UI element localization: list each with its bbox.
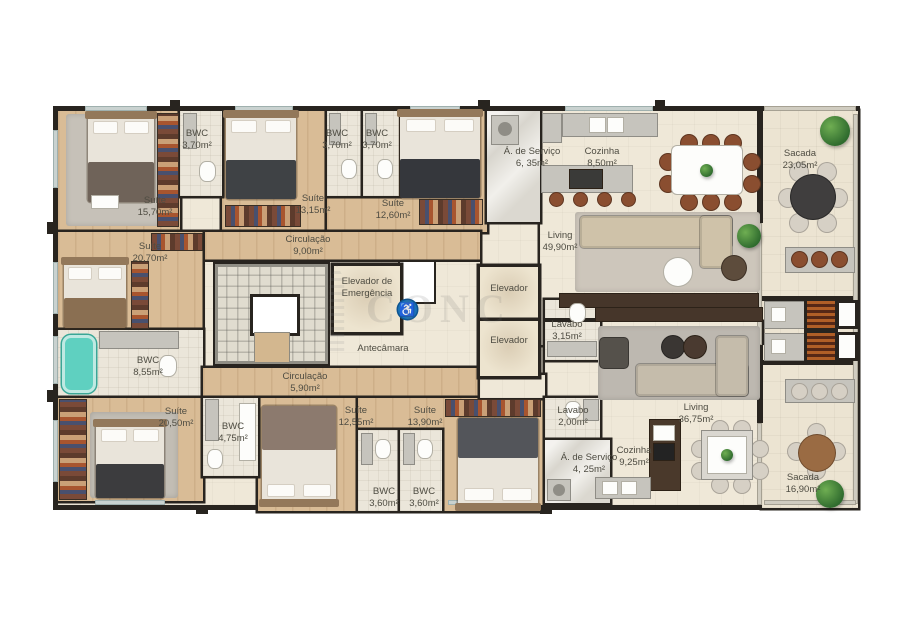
stool-icon (550, 193, 563, 206)
pillar (47, 390, 56, 402)
coffee-table-icon (664, 258, 692, 286)
chair-icon (681, 194, 697, 210)
pillar (196, 505, 208, 514)
sink-icon (622, 482, 636, 494)
room-label-bwc-3-70-c: BWC3,70m² (357, 128, 397, 151)
room-label-suite-12-60: Suíte12,60m² (358, 198, 428, 221)
bed-icon (226, 115, 296, 199)
washer-door (553, 484, 565, 496)
floor-plan: ♿ (0, 0, 900, 636)
room-label-lavabo-2-00: Lavabo2,00m² (543, 405, 603, 428)
vanity-icon (362, 434, 372, 464)
room-label-sacada-16-90: Sacada16,90m² (768, 472, 838, 495)
room-label-suite-13-15: Suíte13,15m² (278, 193, 348, 216)
fridge-icon (543, 114, 561, 142)
centerpiece-plant-icon (700, 164, 713, 177)
sink-icon (772, 340, 785, 353)
pillar (478, 100, 490, 109)
bbq-counter-icon (765, 334, 805, 360)
window (53, 262, 58, 314)
plant-icon (737, 224, 761, 248)
stair-void (250, 294, 300, 336)
window (53, 336, 58, 384)
window (53, 130, 58, 188)
plant-icon (820, 116, 850, 146)
cushion-icon (792, 252, 807, 267)
window (565, 106, 653, 111)
room-hall-patch (480, 375, 545, 398)
bbq-counter-icon (765, 302, 805, 328)
balcony-table-icon (799, 435, 835, 471)
room-label-circulacao-5-90: Circulação5,90m² (265, 371, 345, 394)
bed-icon (96, 424, 164, 498)
tv-console-icon (560, 294, 758, 307)
room-label-living-36-75: Living36,75m² (661, 402, 731, 425)
bed-icon (88, 116, 154, 202)
room-label-lavabo-3-15: Lavabo3,15m² (537, 319, 597, 342)
room-label-bwc-3-70-b: BWC3,70m² (317, 128, 357, 151)
toilet-icon (418, 440, 432, 458)
toilet-icon (342, 160, 356, 178)
toilet-icon (208, 450, 222, 468)
vanity-icon (404, 434, 414, 464)
room-label-suite-15-70: Suíte15,70m² (115, 195, 195, 218)
pillar (655, 100, 665, 109)
sofa-icon (716, 336, 748, 396)
chair-icon (725, 194, 741, 210)
room-label-bwc-3-60-a: BWC3,60m² (362, 486, 406, 509)
wardrobe-icon (420, 200, 482, 224)
sink-icon (603, 482, 617, 494)
room-label-suite-20-70: Suíte20,70m² (115, 241, 185, 264)
chair-icon (744, 154, 760, 170)
room-label-bwc-8-55: BWC8,55m² (118, 355, 178, 378)
cushion-icon (812, 252, 827, 267)
chair-icon (744, 176, 760, 192)
stair-run (255, 333, 289, 362)
chair-icon (752, 441, 768, 457)
cushion-icon (792, 384, 807, 399)
coffee-table-icon (662, 336, 684, 358)
chair-icon (703, 194, 719, 210)
pillar (170, 100, 180, 109)
window (53, 420, 58, 482)
bed-icon (458, 418, 538, 506)
room-label-living-49-90: Living49,90m² (525, 230, 595, 253)
toilet-icon (378, 160, 392, 178)
room-label-bwc-3-60-b: BWC3,60m² (402, 486, 446, 509)
room-label-suite-13-90: Suíte13,90m² (390, 405, 460, 428)
wardrobe-icon (446, 400, 540, 416)
grill-icon (807, 301, 835, 328)
balcony-railing-top (764, 106, 856, 111)
cooktop-icon (570, 170, 602, 188)
bed-icon (64, 262, 126, 328)
room-label-suite-12-55: Suíte12,55m² (321, 405, 391, 428)
tv-console-icon (596, 308, 762, 321)
sink-icon (590, 118, 605, 132)
chair-icon (734, 477, 750, 493)
sink-icon (608, 118, 623, 132)
wardrobe-icon (132, 262, 148, 328)
bbq-table-icon (839, 303, 855, 326)
room-label-elevador-emergencia: Elevador de Emergência (338, 276, 396, 299)
chair-icon (712, 477, 728, 493)
room-label-bwc-4-75: BWC4,75m² (208, 421, 258, 444)
toilet-icon (200, 162, 215, 181)
pillar (540, 505, 552, 514)
room-label-elevador-1: Elevador (480, 283, 538, 295)
stool-icon (598, 193, 611, 206)
grill-icon (807, 333, 835, 360)
bathtub-icon (62, 335, 96, 393)
armchair-icon (600, 338, 628, 368)
room-label-bwc-3-70-a: BWC3,70m² (172, 128, 222, 151)
room-label-cozinha-8-50: Cozinha8,50m² (567, 146, 637, 169)
room-label-sacada-23-05: Sacada23,05m² (765, 148, 835, 171)
staircase (215, 264, 328, 364)
bbq-table-icon (839, 335, 855, 358)
room-label-cozinha-9-25: Cozinha9,25m² (599, 445, 669, 468)
room-label-circulacao-9-00: Circulação9,00m² (268, 234, 348, 257)
washer-door (498, 122, 512, 136)
wall-bbq-mid (806, 328, 834, 332)
sink-icon (772, 308, 785, 321)
chair-icon (752, 463, 768, 479)
stool-icon (622, 193, 635, 206)
room-label-antecamara: Antecâmara (338, 343, 428, 355)
balcony-table-icon (791, 175, 835, 219)
room-label-suite-20-50: Suíte20,50m² (141, 406, 211, 429)
wall-bbq-bottom (762, 360, 858, 365)
pouf-icon (722, 256, 746, 280)
wardrobe-icon (60, 400, 86, 499)
coffee-table-icon (684, 336, 706, 358)
room-label-elevador-2: Elevador (480, 335, 538, 347)
stool-icon (574, 193, 587, 206)
bed-icon (400, 114, 480, 198)
vanity-icon (100, 332, 178, 348)
window (95, 500, 165, 505)
cushion-icon (832, 384, 847, 399)
cushion-icon (832, 252, 847, 267)
centerpiece-plant-icon (721, 449, 733, 461)
oven-icon (654, 426, 674, 440)
toilet-icon (376, 440, 390, 458)
cushion-icon (812, 384, 827, 399)
pillar (47, 222, 56, 234)
room-label-servico-6-35: Á. de Serviço6, 35m² (492, 146, 572, 169)
